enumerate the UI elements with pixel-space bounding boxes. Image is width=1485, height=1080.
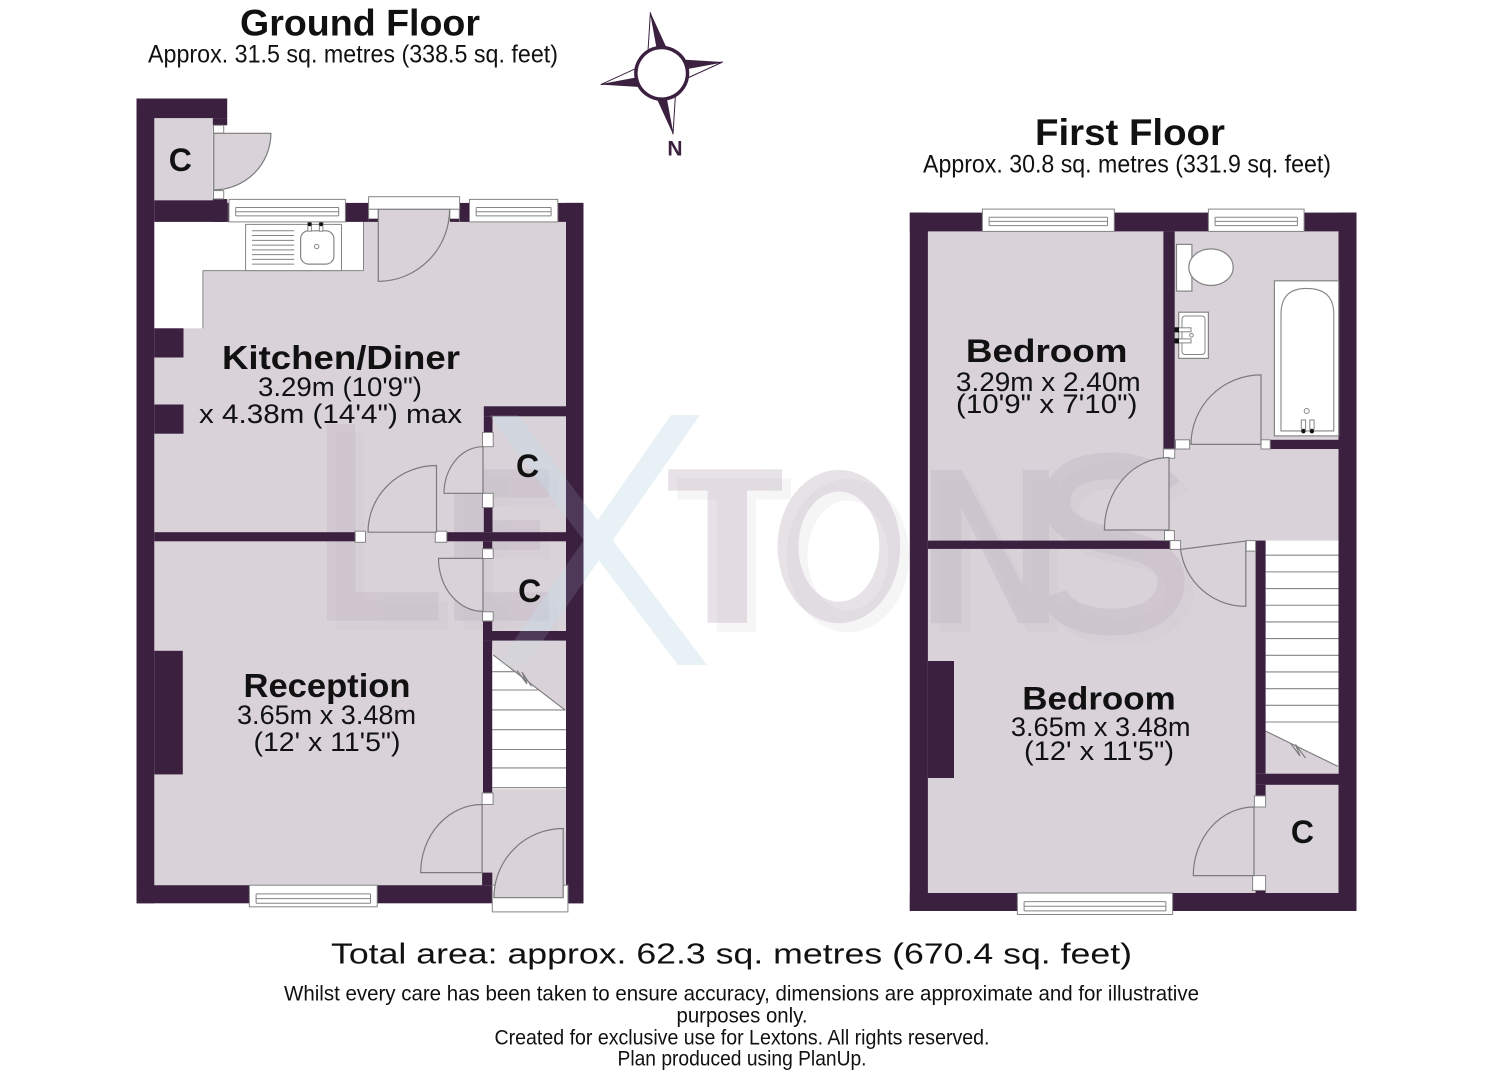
svg-text:Approx. 30.8 sq. metres (331.9: Approx. 30.8 sq. metres (331.9 sq. feet) xyxy=(923,151,1331,179)
svg-text:Approx. 31.5 sq. metres (338.5: Approx. 31.5 sq. metres (338.5 sq. feet) xyxy=(148,41,558,69)
svg-text:Ground Floor: Ground Floor xyxy=(240,3,480,44)
svg-text:3.65m x 3.48m: 3.65m x 3.48m xyxy=(237,700,416,730)
svg-text:3.29m (10'9"): 3.29m (10'9") xyxy=(258,372,422,402)
svg-text:(12' x 11'5"): (12' x 11'5") xyxy=(254,727,401,757)
svg-text:(10'9" x 7'10"): (10'9" x 7'10") xyxy=(956,389,1137,419)
svg-text:(12' x 11'5"): (12' x 11'5") xyxy=(1024,736,1174,766)
svg-text:purposes only.: purposes only. xyxy=(677,1005,808,1028)
svg-text:N: N xyxy=(667,138,682,161)
svg-text:Total area: approx. 62.3 sq. m: Total area: approx. 62.3 sq. metres (670… xyxy=(331,939,1132,971)
svg-text:First Floor: First Floor xyxy=(1035,112,1225,153)
svg-text:Bedroom: Bedroom xyxy=(966,333,1128,369)
svg-text:Plan produced using PlanUp.: Plan produced using PlanUp. xyxy=(618,1048,867,1071)
svg-text:C: C xyxy=(1291,814,1314,850)
svg-text:Reception: Reception xyxy=(244,667,411,704)
svg-text:Kitchen/Diner: Kitchen/Diner xyxy=(222,339,460,376)
svg-text:x 4.38m (14'4") max: x 4.38m (14'4") max xyxy=(199,399,463,429)
svg-text:C: C xyxy=(169,142,192,178)
svg-text:C: C xyxy=(516,448,539,484)
svg-text:Whilst every care has been tak: Whilst every care has been taken to ensu… xyxy=(284,983,1199,1006)
svg-text:C: C xyxy=(518,573,541,609)
svg-text:Created for exclusive use for: Created for exclusive use for Lextons. A… xyxy=(495,1027,990,1050)
